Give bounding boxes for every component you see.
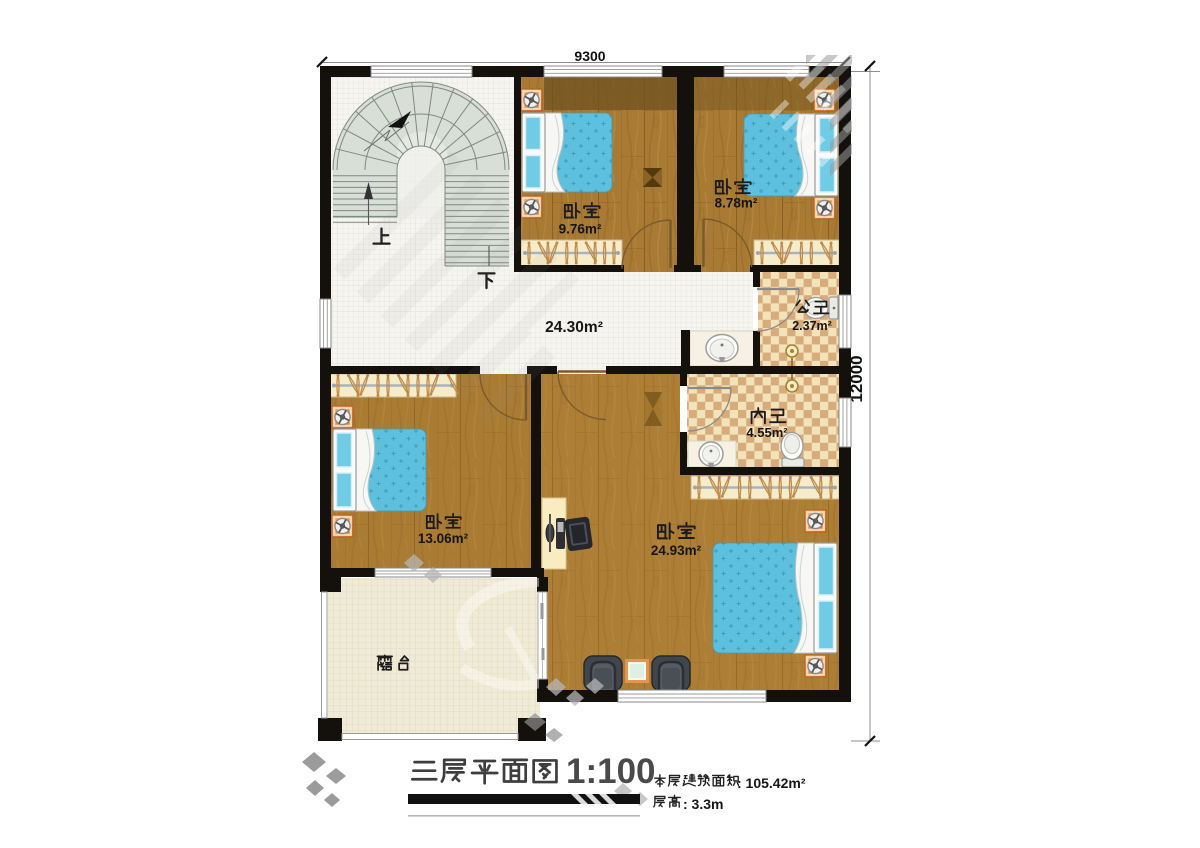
svg-text:24.30m²: 24.30m²	[545, 319, 603, 336]
svg-text:13.06m²: 13.06m²	[418, 531, 469, 546]
svg-text:2.37m²: 2.37m²	[792, 319, 832, 333]
svg-text:4.55m²: 4.55m²	[746, 425, 788, 440]
svg-text:1:100: 1:100	[566, 752, 656, 791]
svg-text:: 3.3m: : 3.3m	[683, 796, 723, 812]
svg-text:24.93m²: 24.93m²	[651, 543, 702, 558]
svg-text:8.78m²: 8.78m²	[715, 196, 758, 211]
svg-text:9.76m²: 9.76m²	[559, 222, 602, 237]
svg-text:9300: 9300	[574, 48, 605, 64]
svg-text:: 105.42m²: : 105.42m²	[737, 775, 806, 791]
